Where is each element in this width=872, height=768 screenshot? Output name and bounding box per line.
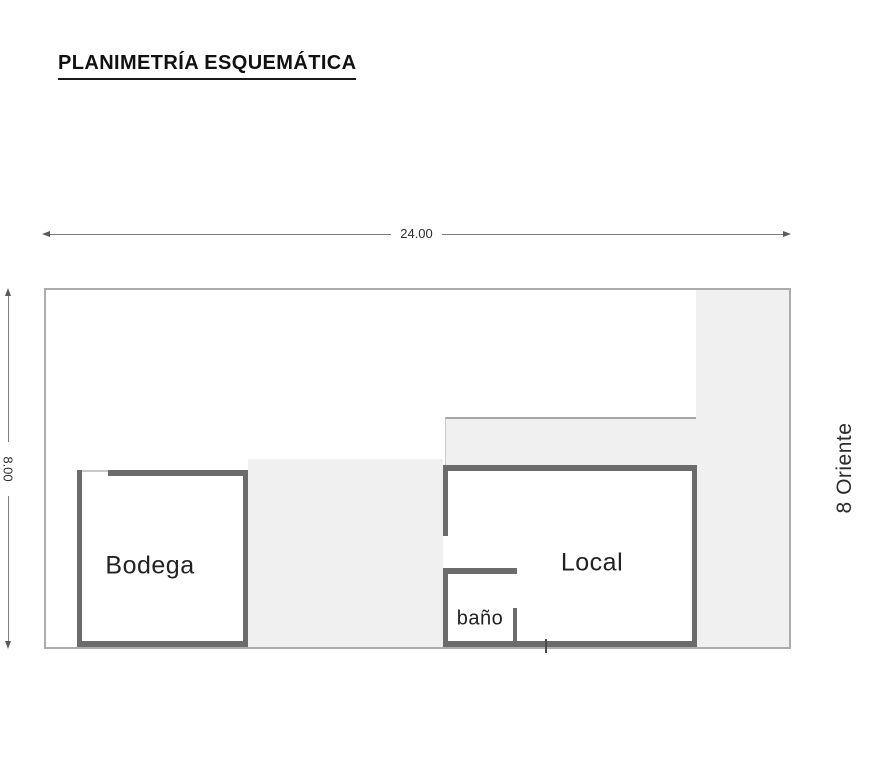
bodega-wall-right (243, 470, 248, 647)
dim-line-right-segment (442, 234, 783, 235)
dim-arrow-left-icon (42, 231, 50, 237)
dimension-vertical: 8.00 (1, 288, 15, 649)
paved-entry-strip (445, 417, 696, 467)
local-wall-top (443, 465, 697, 471)
courtyard-area (248, 459, 443, 647)
local-label: Local (561, 549, 623, 578)
dim-line-top-segment (8, 296, 9, 442)
bano-label: baño (457, 608, 504, 631)
bottom-wall-tick (545, 639, 547, 653)
bodega-door-opening (82, 470, 108, 472)
bodega-wall-left (77, 470, 82, 647)
dimension-vertical-label: 8.00 (1, 456, 16, 481)
dim-line-bottom-segment (8, 496, 9, 642)
bodega-wall-top (108, 470, 248, 476)
dimension-horizontal: 24.00 (42, 227, 791, 241)
dim-line-left-segment (50, 234, 391, 235)
page-title: PLANIMETRÍA ESQUEMÁTICA (58, 52, 356, 80)
parcel-boundary: Bodega Local baño (44, 288, 791, 649)
dimension-horizontal-label: 24.00 (391, 227, 442, 241)
dim-arrow-bottom-icon (5, 641, 11, 649)
street-label: 8 Oriente (833, 423, 857, 514)
local-wall-left-upper (443, 465, 448, 536)
bodega-wall-bottom (77, 641, 248, 647)
dim-arrow-right-icon (783, 231, 791, 237)
local-wall-left-lower (443, 568, 448, 647)
floor-plan: PLANIMETRÍA ESQUEMÁTICA 24.00 8.00 Bodeg… (0, 0, 872, 768)
bano-wall-right-stub (513, 608, 517, 647)
dimension-vertical-label-wrap: 8.00 (1, 442, 15, 496)
bodega-label: Bodega (105, 552, 194, 581)
paved-strip-right (696, 290, 789, 647)
dim-arrow-top-icon (5, 288, 11, 296)
bano-wall-top (443, 568, 517, 574)
local-wall-bottom (443, 641, 697, 647)
local-wall-right (692, 465, 697, 647)
